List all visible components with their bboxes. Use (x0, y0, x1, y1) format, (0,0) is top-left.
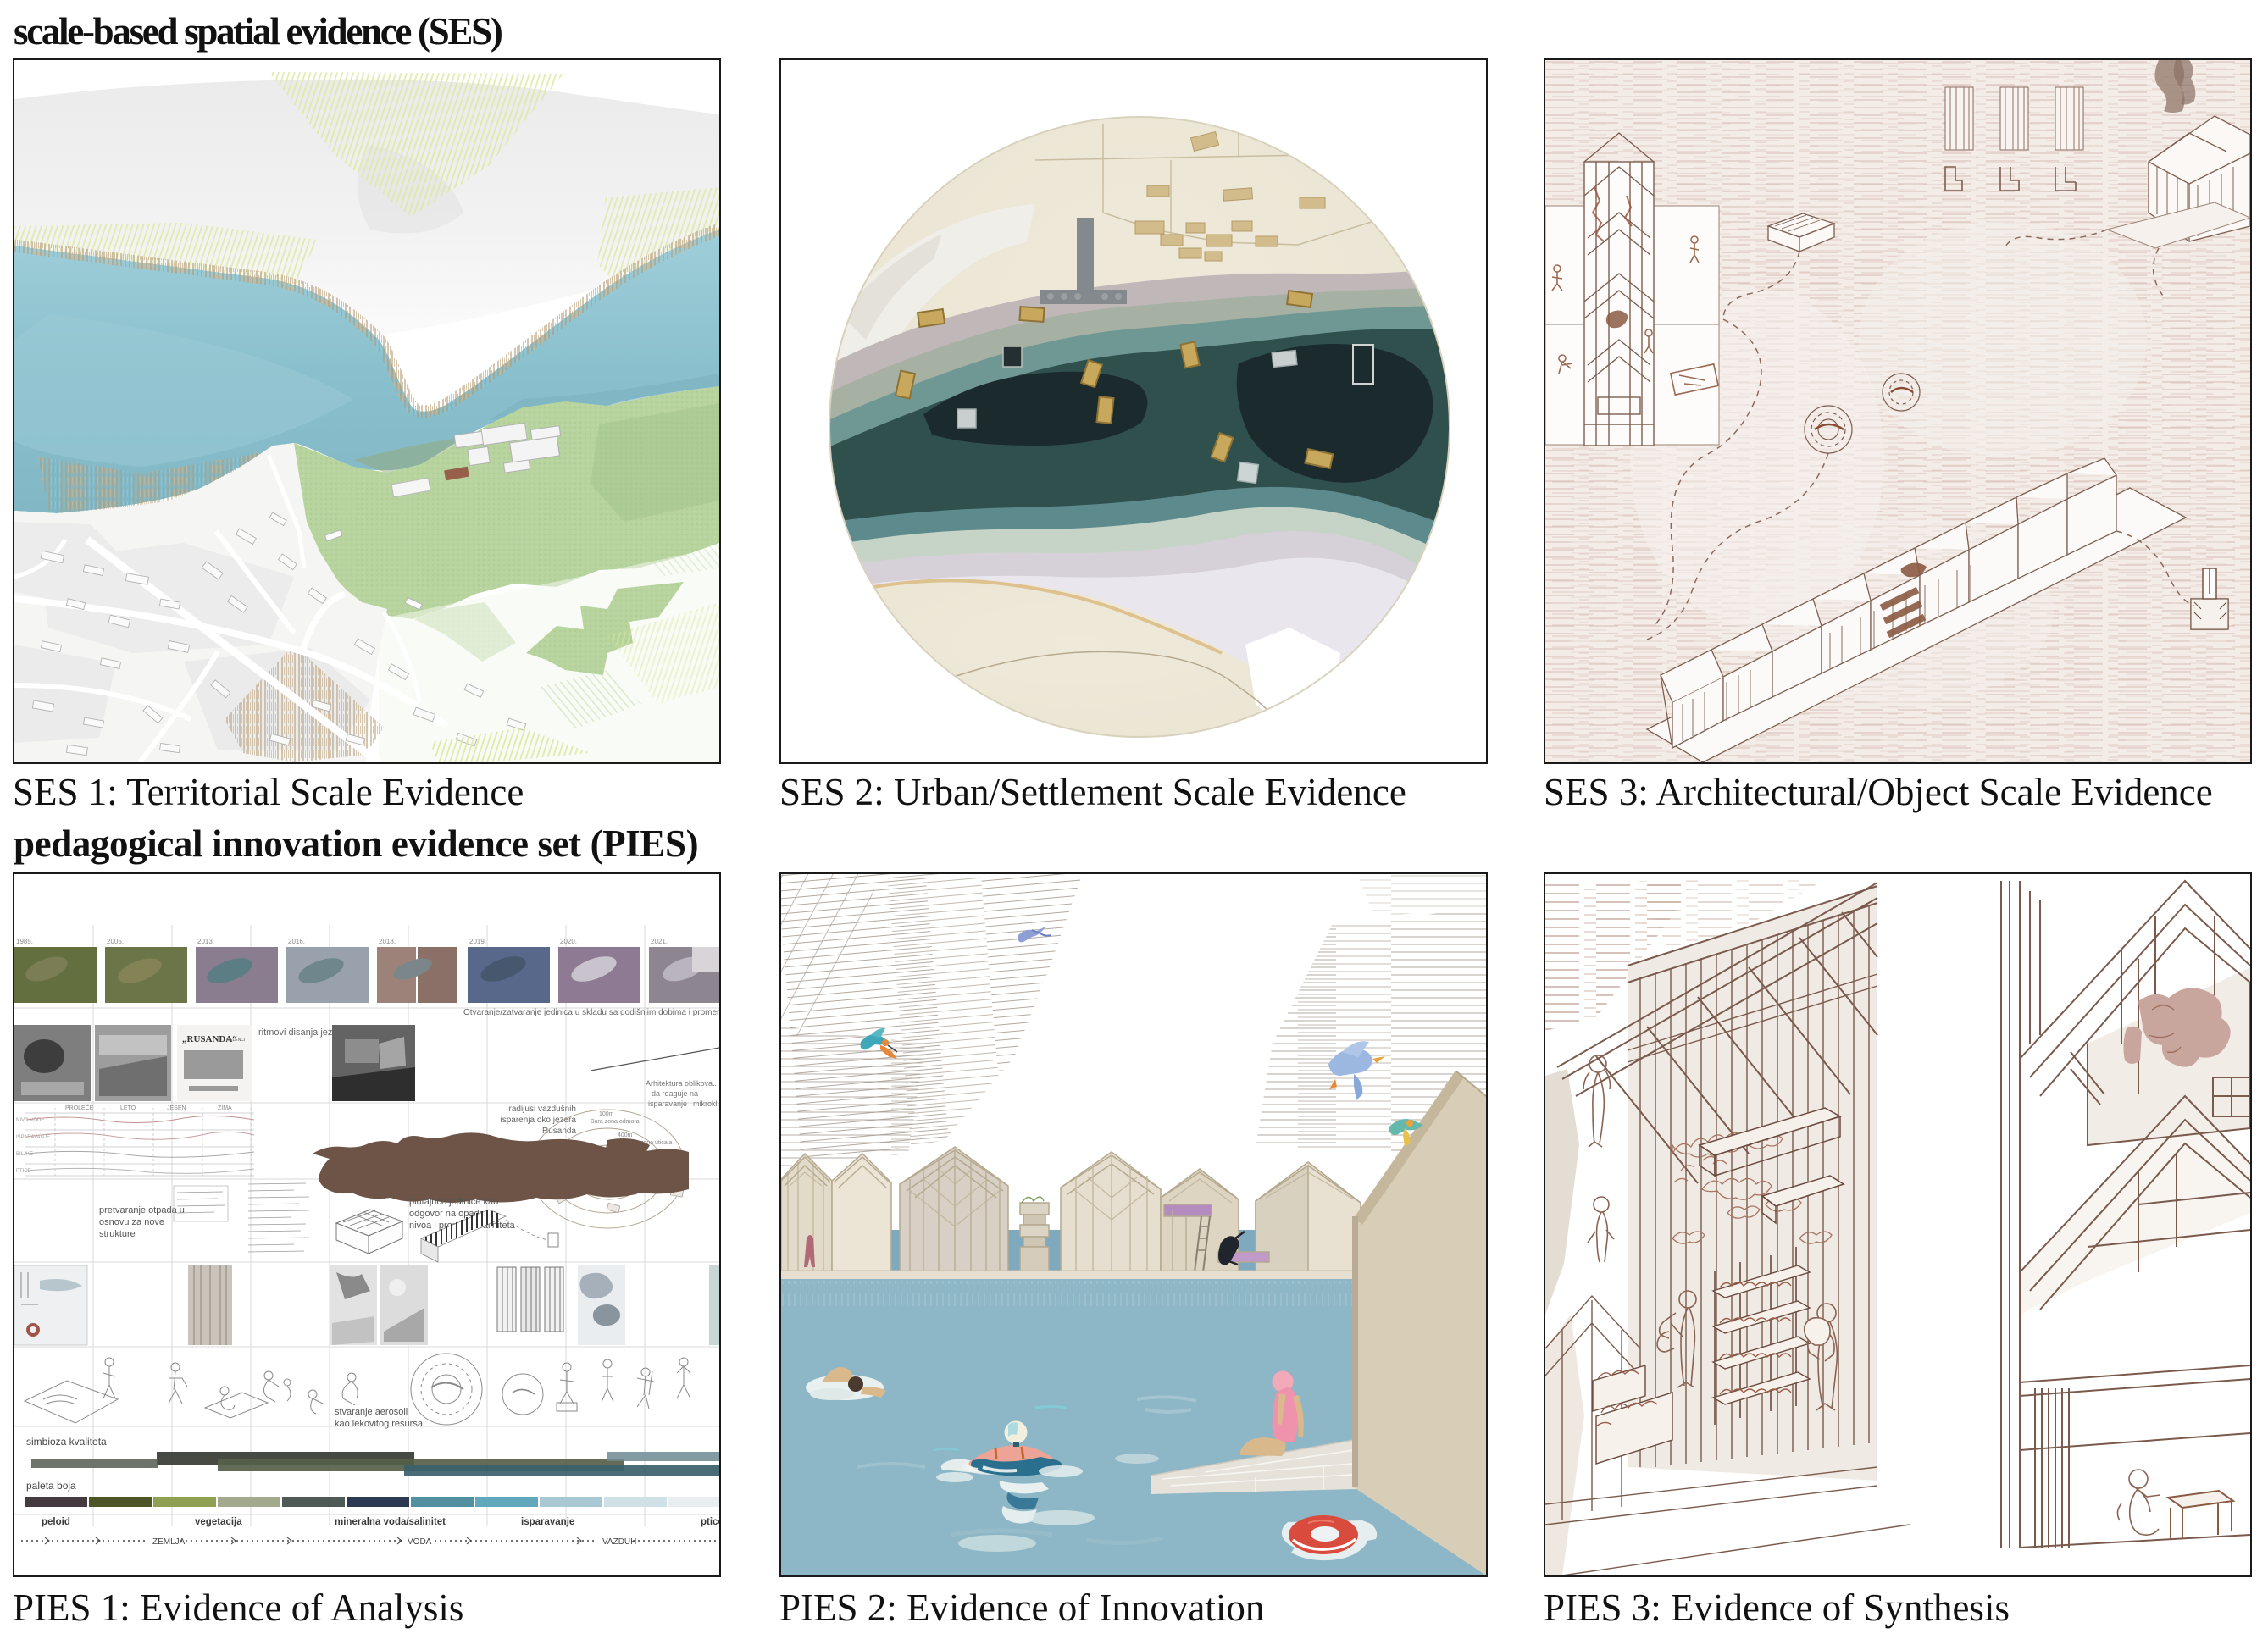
svg-text:PROLEĆE: PROLEĆE (65, 1104, 94, 1111)
svg-text:kao lekovitog resursa: kao lekovitog resursa (335, 1419, 424, 1429)
svg-text:2021.: 2021. (651, 938, 668, 945)
svg-text:100m: 100m (599, 1111, 614, 1117)
svg-text:400m: 400m (618, 1132, 633, 1138)
svg-text:isparavanje i mikrokl.: isparavanje i mikrokl. (648, 1099, 719, 1108)
svg-text:2019.: 2019. (469, 938, 486, 945)
svg-text:VODA: VODA (408, 1537, 432, 1547)
svg-text:isparenja oko jezera: isparenja oko jezera (501, 1116, 577, 1125)
svg-text:osnovu za nove: osnovu za nove (99, 1217, 164, 1227)
svg-text:vegetacija: vegetacija (195, 1517, 242, 1527)
svg-text:2005.: 2005. (107, 938, 124, 945)
svg-text:NIVO VODE: NIVO VODE (16, 1118, 44, 1123)
svg-text:BILJKE: BILJKE (16, 1152, 33, 1157)
svg-text:JESEN: JESEN (167, 1105, 186, 1111)
svg-text:ZEMLJA: ZEMLJA (152, 1537, 186, 1547)
svg-text:plutajuće jedinice kao: plutajuće jedinice kao (409, 1197, 498, 1207)
svg-text:ZIMA: ZIMA (218, 1105, 232, 1111)
svg-text:2018.: 2018. (379, 938, 396, 945)
svg-text:PTICE: PTICE (16, 1169, 31, 1174)
svg-text:pretvaranje otpada u: pretvaranje otpada u (99, 1205, 185, 1215)
svg-text:peloid: peloid (42, 1517, 70, 1527)
svg-text:Arhitektura oblikova..: Arhitektura oblikova.. (646, 1079, 717, 1088)
svg-text:ptice: ptice (701, 1517, 719, 1527)
svg-text:strukture: strukture (99, 1229, 136, 1239)
svg-text:mineralna voda/salinitet: mineralna voda/salinitet (335, 1517, 446, 1527)
svg-text:isparavanje: isparavanje (521, 1517, 574, 1527)
svg-text:da reaguje na: da reaguje na (652, 1089, 698, 1098)
svg-text:Otvaranje/zatvaranje jedinica: Otvaranje/zatvaranje jedinica u skladu s… (463, 1008, 719, 1017)
svg-text:2020.: 2020. (560, 938, 577, 945)
svg-text:2016.: 2016. (288, 938, 305, 945)
svg-text:stvaranje aerosoli: stvaranje aerosoli (335, 1407, 408, 1417)
svg-text:paleta boja: paleta boja (26, 1480, 76, 1492)
svg-text:radijusi vazdušnih: radijusi vazdušnih (509, 1105, 577, 1114)
svg-text:LETO: LETO (120, 1105, 136, 1111)
svg-text:simbioza kvaliteta: simbioza kvaliteta (26, 1436, 107, 1448)
svg-text:2013.: 2013. (197, 938, 214, 945)
svg-text:MELENCI: MELENCI (226, 1038, 245, 1043)
svg-text:1985.: 1985. (16, 938, 33, 945)
svg-text:VAZDUH: VAZDUH (602, 1537, 636, 1547)
svg-text:Bara zona odmora: Bara zona odmora (591, 1119, 640, 1125)
